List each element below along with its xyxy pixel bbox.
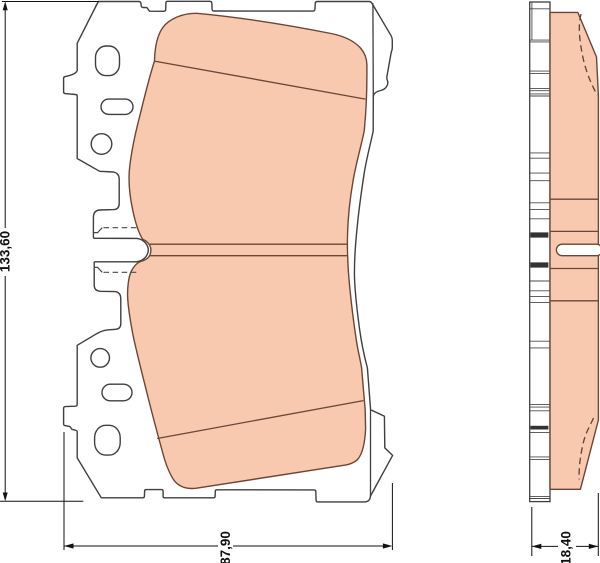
svg-text:18,40: 18,40	[559, 531, 574, 563]
svg-text:87,90: 87,90	[218, 531, 233, 563]
svg-text:133,60: 133,60	[0, 231, 13, 272]
